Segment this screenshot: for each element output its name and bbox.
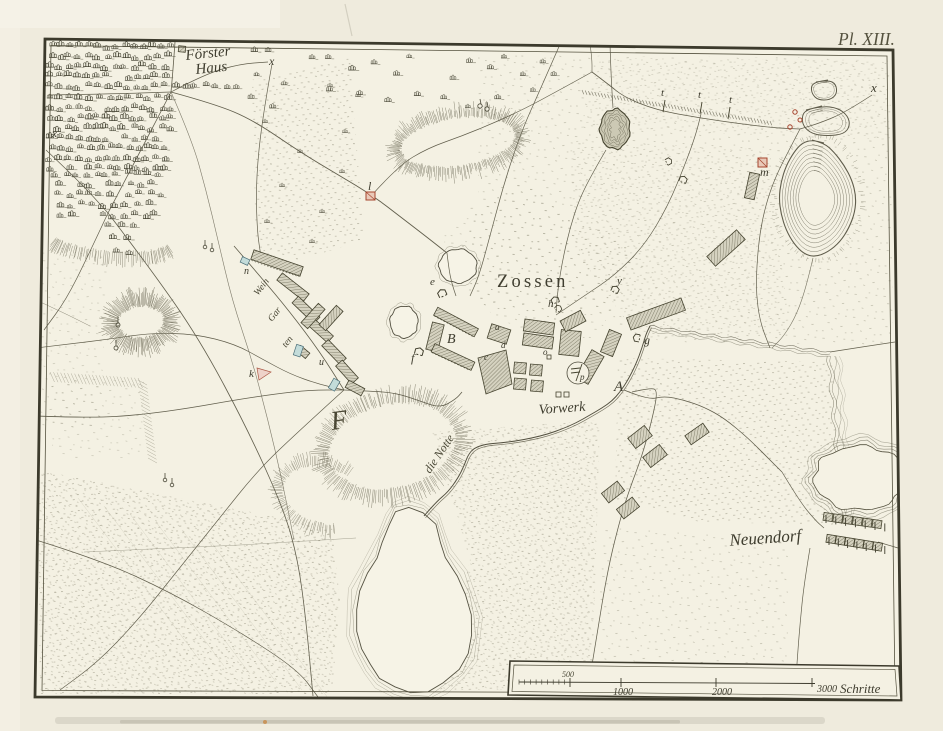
svg-text:h: h	[548, 298, 554, 310]
svg-text:x: x	[51, 128, 57, 140]
svg-text:Pl. XIII.: Pl. XIII.	[837, 29, 895, 49]
svg-text:Schritte: Schritte	[840, 681, 881, 696]
svg-text:c: c	[484, 352, 488, 362]
svg-text:500: 500	[562, 670, 574, 679]
svg-text:A: A	[613, 379, 624, 395]
svg-text:d: d	[501, 340, 506, 350]
svg-text:e: e	[430, 276, 435, 288]
svg-text:u: u	[319, 357, 324, 368]
svg-text:m: m	[760, 165, 769, 179]
svg-text:x: x	[870, 80, 877, 95]
svg-text:g: g	[644, 333, 650, 347]
svg-text:n: n	[244, 266, 249, 277]
svg-text:3000: 3000	[816, 684, 837, 695]
svg-text:a: a	[495, 322, 500, 332]
svg-text:2000: 2000	[712, 687, 732, 698]
svg-text:y: y	[616, 275, 622, 287]
svg-text:p: p	[579, 372, 585, 382]
svg-text:B: B	[447, 332, 456, 347]
svg-text:x: x	[268, 54, 275, 68]
svg-text:Zossen: Zossen	[497, 272, 569, 292]
svg-text:o: o	[543, 347, 548, 357]
svg-text:1000: 1000	[613, 687, 633, 698]
svg-text:Haus: Haus	[194, 59, 228, 78]
